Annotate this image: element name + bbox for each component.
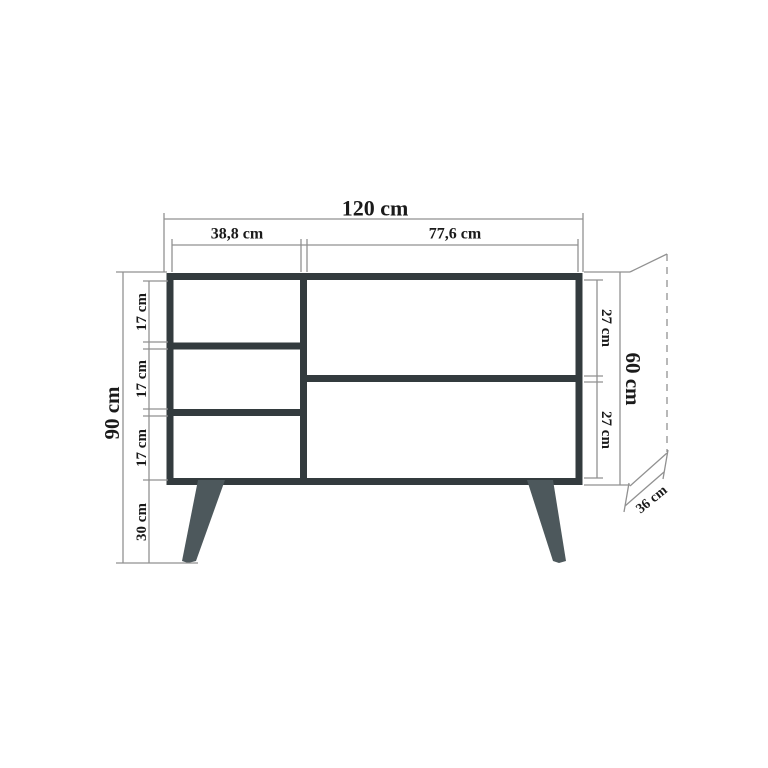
extension-line: [624, 483, 629, 512]
cabinet-body: [170, 277, 579, 482]
label-total-width: 120 cm: [342, 196, 409, 221]
cabinet-legs: [182, 480, 566, 563]
label-body-height: 60 cm: [621, 352, 645, 406]
label-left-column-width: 38,8 cm: [211, 226, 264, 243]
label-left-shelf-3: 17 cm: [134, 429, 150, 467]
label-right-shelf-2: 27 cm: [598, 411, 614, 449]
technical-drawing-canvas: 120 cm 38,8 cm 77,6 cm 90 cm 17 cm 17 cm…: [0, 0, 768, 768]
label-left-shelf-1: 17 cm: [134, 293, 150, 331]
depth-projection-top: [630, 254, 667, 272]
label-depth: 36 cm: [634, 483, 671, 517]
sideboard-dimension-diagram: 120 cm 38,8 cm 77,6 cm 90 cm 17 cm 17 cm…: [0, 0, 768, 768]
right-leg: [527, 480, 566, 563]
label-right-column-width: 77,6 cm: [429, 226, 482, 243]
left-leg: [182, 480, 225, 563]
depth-projection-bottom: [630, 453, 667, 486]
dimension-labels: 120 cm 38,8 cm 77,6 cm 90 cm 17 cm 17 cm…: [100, 196, 671, 541]
label-total-height: 90 cm: [100, 386, 124, 440]
label-left-shelf-2: 17 cm: [134, 360, 150, 398]
label-leg-height: 30 cm: [134, 503, 150, 541]
label-right-shelf-1: 27 cm: [598, 309, 614, 347]
